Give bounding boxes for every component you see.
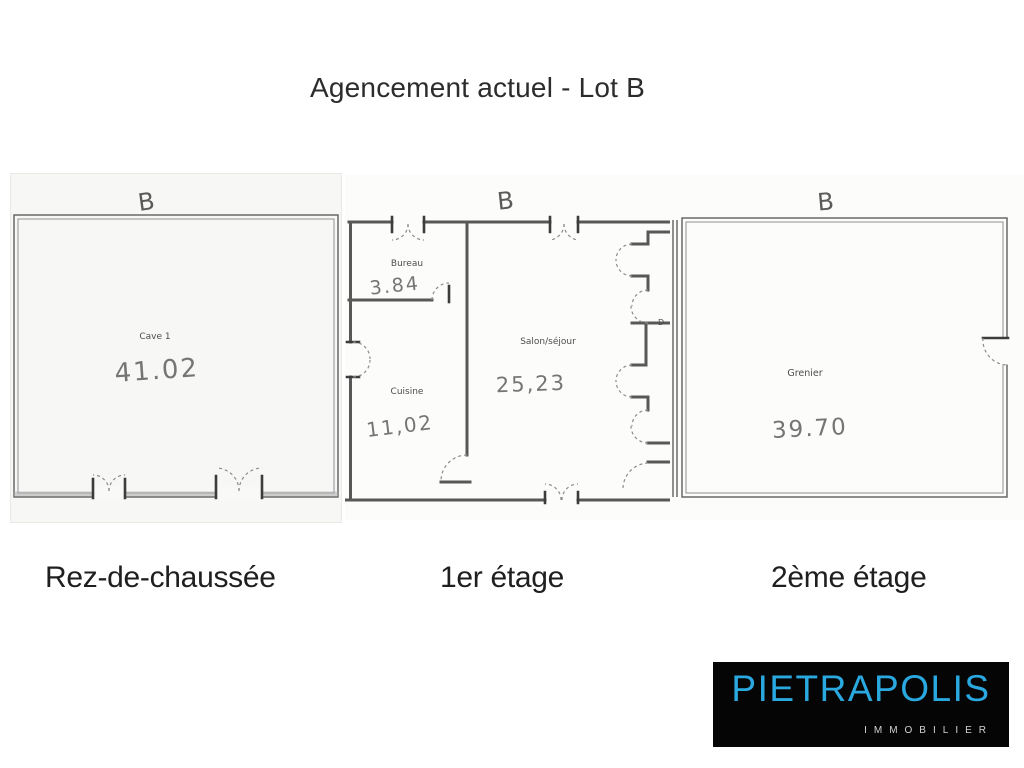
scan-background	[11, 174, 342, 523]
room-area: 39.70	[771, 414, 848, 444]
brand-tagline: IMMOBILIER	[864, 725, 993, 736]
plan-letter: B	[496, 186, 515, 216]
room-area: 25,23	[495, 371, 566, 397]
room-area: 41.02	[114, 353, 200, 389]
scan-background	[345, 175, 685, 520]
room-name: Grenier	[787, 368, 822, 379]
plan-letter: B	[816, 187, 835, 216]
floor-plan-second: B Grenier 39.70	[670, 175, 1024, 520]
floor-label-first: 1er étage	[440, 561, 564, 595]
floor-plan-ground: B Cave 1 41.02	[10, 173, 342, 523]
floor-label-second: 2ème étage	[771, 561, 926, 595]
door-label: D	[658, 318, 664, 327]
brand-logo: PIETRAPOLIS IMMOBILIER	[713, 662, 1009, 747]
floor-plan-first: B Bureau 3.84 Cuisine 11,02 Salon/séjour…	[345, 175, 685, 520]
page-title: Agencement actuel - Lot B	[310, 72, 645, 104]
brand-name: PIETRAPOLIS	[713, 668, 1009, 710]
room-name: Cave 1	[139, 332, 170, 342]
floor-label-ground: Rez-de-chaussée	[45, 561, 276, 595]
room-name: Cuisine	[391, 387, 424, 397]
room-name: Salon/séjour	[520, 336, 576, 347]
room-name: Bureau	[391, 259, 423, 269]
scan-background	[670, 175, 1024, 520]
